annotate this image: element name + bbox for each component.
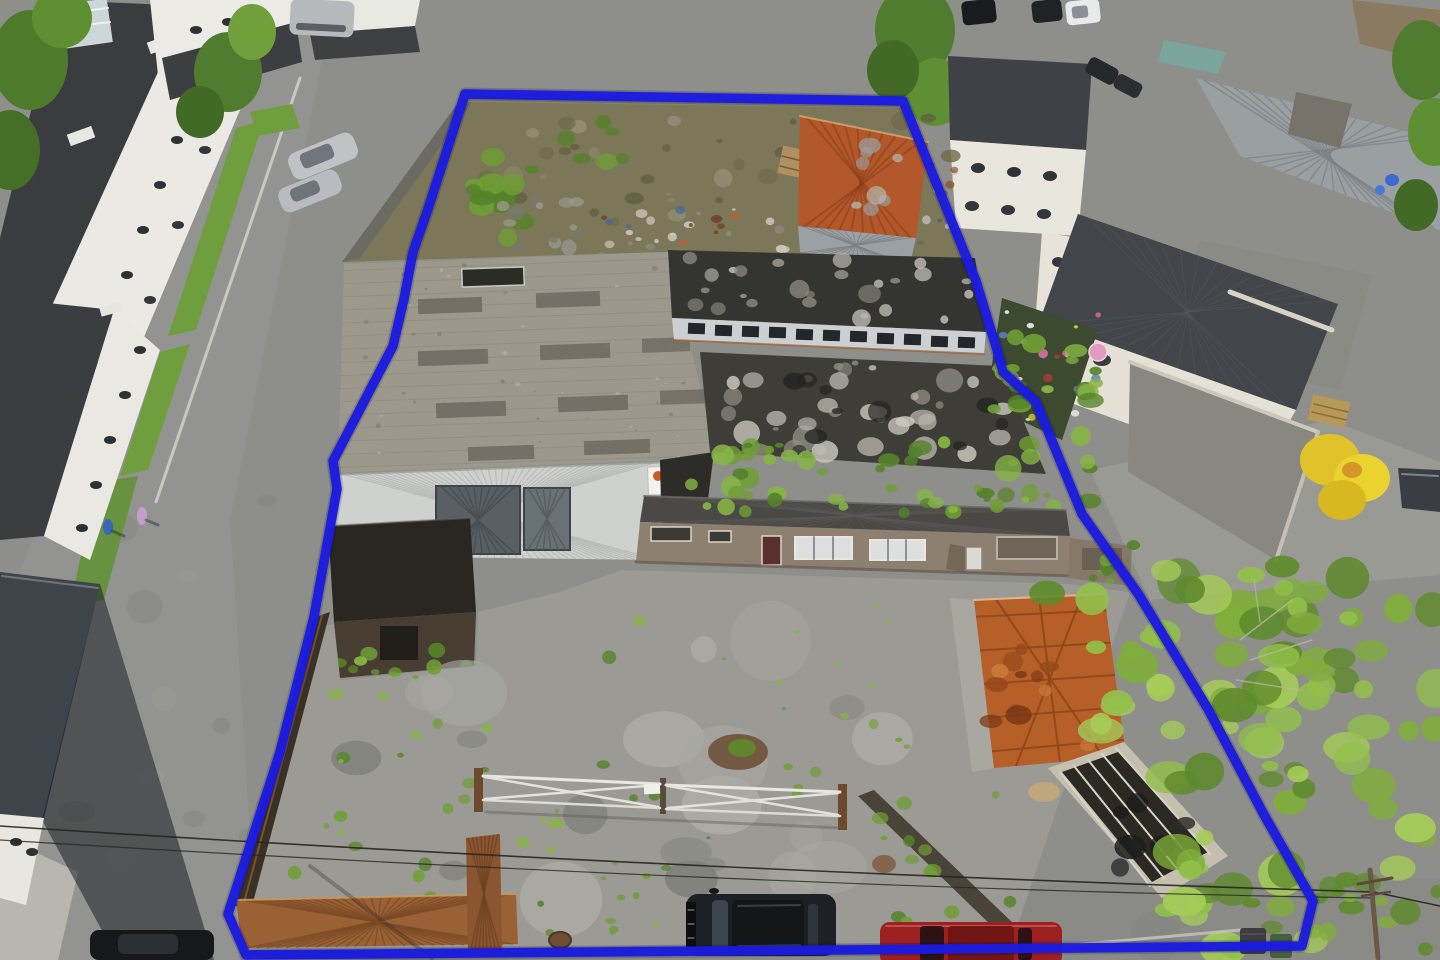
overgrowth-right: [1354, 640, 1388, 662]
yard-bushes-2: [595, 153, 618, 169]
yard-mottle: [667, 198, 675, 203]
orange-roof-rust: [1005, 705, 1031, 725]
orange-roof-rust: [985, 677, 1008, 692]
orange-roof-rust: [991, 664, 1008, 678]
house-window: [1037, 209, 1051, 219]
debris-pile: [775, 225, 785, 233]
debris-pile: [636, 209, 648, 218]
roofline-greenery: [948, 506, 958, 513]
right-fence-greens: [944, 905, 959, 918]
upper-flat-roof: [668, 250, 986, 332]
debris-pile: [628, 242, 633, 246]
lower-roof-mottle: [936, 401, 944, 409]
clerestory-window: [877, 333, 894, 345]
overgrowth-lower: [1334, 743, 1371, 775]
overgrowth-upper: [1090, 713, 1112, 735]
yard-weeds-2: [810, 767, 821, 777]
buddleia-fringe: [908, 447, 923, 458]
pedestrian-pink: [137, 507, 147, 525]
house-window: [119, 391, 131, 399]
upper-roof-mottle: [711, 302, 726, 315]
tree: [176, 86, 224, 138]
lower-roof-mottle: [798, 417, 817, 430]
debris-pile: [726, 231, 732, 237]
yard-weeds-1: [413, 870, 425, 882]
boundary-hedge: [1022, 334, 1046, 353]
yard-weeds-1: [706, 836, 710, 839]
laundry-items: [1074, 325, 1078, 328]
right-fence-greens: [918, 844, 932, 855]
house-window: [1043, 171, 1057, 181]
overgrowth-upper: [1101, 690, 1132, 714]
road-wear: [212, 717, 230, 733]
roof-speckle: [503, 291, 508, 294]
yard-weeds-1: [597, 760, 611, 769]
road-wear: [152, 687, 176, 711]
roof-vent-patch: [540, 343, 610, 360]
roof-speckle: [363, 356, 368, 360]
yard-weeds-1: [633, 892, 640, 899]
lower-roof-mottle: [989, 430, 1011, 446]
roof-vent-patch: [418, 349, 488, 366]
yard-weeds-2: [868, 684, 875, 689]
overgrowth-right: [1326, 557, 1370, 599]
roofline-greenery: [744, 491, 753, 500]
lower-roof-mottle: [852, 360, 859, 365]
roof-vent-patch: [468, 445, 534, 461]
upper-roof-mottle: [688, 298, 704, 311]
yard-weeds-1: [483, 724, 492, 732]
yard-mottle: [917, 240, 924, 245]
roof-speckle: [437, 332, 441, 336]
debris-pile: [654, 239, 659, 243]
road-wear: [126, 590, 162, 624]
yard-mottle: [540, 174, 547, 178]
lower-roof-mottle: [743, 372, 764, 388]
yard-weeds-3: [605, 918, 616, 924]
boundary-hedge: [1041, 385, 1053, 393]
debris-pile: [605, 240, 615, 248]
house-window: [965, 201, 979, 211]
cottage-small-window: [709, 531, 731, 542]
shed-base-weeds: [428, 643, 445, 658]
extension-greenery: [1089, 574, 1097, 581]
yard-weeds-1: [412, 675, 418, 679]
cottage-small-window: [651, 527, 691, 541]
lower-roof-dark: [804, 429, 827, 444]
suv-roof-rail: [738, 905, 800, 906]
house-window: [971, 163, 985, 173]
yard-mottle: [715, 197, 723, 203]
rubble-grey: [559, 197, 574, 207]
black-plastic-heap: [1111, 858, 1129, 876]
house-window: [90, 481, 102, 489]
orange-roof-rust: [1015, 671, 1027, 678]
upper-roof-mottle: [772, 259, 784, 267]
rubble-grey: [561, 240, 576, 256]
clerestory-window: [769, 327, 786, 339]
rubble-grey: [536, 202, 543, 209]
yard-mottle: [758, 169, 778, 185]
yard-weeds-1: [516, 837, 530, 848]
terrace-window: [154, 181, 166, 189]
overgrowth-right: [1287, 612, 1322, 634]
right-fence-greens: [905, 855, 919, 864]
yard-bushes: [466, 184, 481, 196]
upper-roof-mottle: [914, 267, 931, 281]
upper-roof-mottle: [879, 304, 892, 316]
roofline-greenery: [928, 497, 944, 509]
laundry-items: [1054, 354, 1060, 358]
buddleia-fringe: [711, 445, 734, 466]
lower-roof-mottle: [918, 414, 936, 430]
lower-roof-mottle: [896, 416, 915, 427]
roof-speckle: [462, 263, 467, 267]
yard-weeds-1: [328, 688, 344, 700]
roof-speckle: [655, 378, 659, 381]
rubble-grey: [570, 224, 577, 230]
upper-roof-mottle: [705, 268, 719, 281]
roof-speckle: [440, 268, 444, 272]
yard-mottle: [665, 192, 672, 196]
buddleia-fringe: [817, 468, 829, 475]
overgrowth-right: [1237, 567, 1265, 583]
yard-bushes-2: [596, 115, 611, 129]
yard-weeds-3: [288, 866, 302, 880]
grey-van: [289, 0, 355, 38]
rubble-grey: [497, 201, 509, 211]
clerestory-window: [931, 336, 948, 348]
roof-speckle: [677, 435, 679, 437]
yard-weeds-3: [610, 930, 615, 935]
overgrowth-upper: [1075, 583, 1108, 616]
right-fence-greens: [1004, 896, 1017, 908]
yard-weeds-3: [537, 901, 544, 907]
black-plastic-heap: [1127, 793, 1149, 813]
rust-roof-grey-patches: [851, 202, 862, 209]
clerestory-window: [796, 329, 813, 341]
overgrowth-lower: [1399, 721, 1419, 741]
yard-weeds-1: [548, 818, 564, 828]
yard-mottle: [570, 144, 580, 150]
yard-mottle: [641, 175, 655, 184]
debris-pile: [696, 212, 700, 216]
clerestory-window: [715, 325, 732, 337]
roof-speckle: [447, 275, 451, 278]
overgrowth-corner: [1390, 899, 1420, 925]
boarded-window: [997, 537, 1057, 559]
laundry-items: [1043, 374, 1052, 382]
tree: [867, 40, 919, 100]
black-car-glass: [118, 934, 178, 954]
overgrowth-lower: [1258, 771, 1283, 787]
debris-pile: [627, 224, 632, 229]
buddleia-fringe: [764, 446, 774, 454]
roofline-greenery: [899, 507, 910, 518]
black-shed-roof: [328, 518, 476, 622]
parked-car-dark: [961, 0, 997, 26]
boundary-hedge: [1064, 344, 1087, 357]
gate-post-left: [474, 768, 483, 812]
house-window: [104, 436, 116, 444]
laundry-items: [1005, 310, 1009, 314]
roof-speckle: [656, 402, 658, 404]
roof-speckle: [424, 288, 428, 290]
yard-weeds-1: [389, 667, 402, 677]
upper-roof-mottle: [683, 252, 697, 264]
aerial-photo-svg: [0, 0, 1440, 960]
roofline-greenery: [828, 494, 845, 505]
junk-near-wall: [922, 215, 931, 224]
yellow-bush: [1318, 480, 1366, 520]
yard-weeds-1: [722, 657, 726, 660]
roof-speckle: [534, 391, 536, 392]
rubble-grey: [503, 219, 516, 227]
yard-mottle: [920, 114, 936, 123]
roof-speckle: [502, 351, 507, 355]
house-window: [26, 848, 38, 856]
lower-roof-dark: [820, 385, 832, 395]
yard-mottle: [714, 169, 733, 188]
yard-weeds-1: [379, 692, 388, 701]
cottage-window-1: [795, 537, 852, 559]
yard-weeds-2: [782, 707, 786, 711]
buddleia-fringe: [797, 451, 816, 470]
yard-bushes: [526, 166, 539, 174]
upper-roof-mottle: [940, 315, 948, 323]
pedestrian-blue: [103, 519, 113, 535]
overgrowth-corner: [1374, 896, 1388, 905]
right-fence-greens: [896, 797, 912, 810]
buddleia-fringe: [775, 443, 784, 448]
overgrowth-right: [1339, 611, 1357, 625]
car-glass: [1071, 5, 1088, 19]
house1-wall: [950, 140, 1086, 236]
roof-speckle: [376, 423, 381, 428]
roof-speckle: [615, 285, 618, 288]
yard-weeds-2: [776, 679, 783, 684]
yard-worn-patches: [852, 712, 913, 765]
overgrowth-right: [1297, 682, 1330, 710]
roof-speckle: [364, 320, 369, 324]
lower-roof-dark: [783, 373, 806, 390]
upper-roof-mottle: [890, 278, 900, 284]
shed-base-weeds: [354, 656, 367, 665]
manhole: [549, 932, 571, 948]
lower-roof-mottle: [834, 363, 844, 370]
lower-roof-mottle: [727, 376, 740, 390]
yard-weeds-2: [992, 791, 1000, 798]
upper-roof-mottle: [914, 258, 926, 269]
buddleia-fringe: [685, 479, 698, 491]
lower-roof-dark: [868, 401, 891, 423]
roof-speckle: [668, 413, 673, 416]
rubble-grey: [549, 235, 558, 242]
debris-pile: [711, 215, 722, 223]
yard-weeds-1: [411, 731, 423, 740]
yard-bushes-2: [557, 131, 575, 146]
yard-weeds-1: [629, 794, 638, 801]
rust-roof-grey-patches: [867, 186, 887, 204]
lower-roof-dark: [832, 408, 843, 414]
yard-weeds-2: [895, 738, 902, 742]
yard-dark-patches: [439, 861, 469, 881]
upper-roof-mottle: [834, 270, 848, 279]
roof-hatch: [462, 267, 525, 287]
yard-mottle: [559, 147, 572, 155]
buddleia-fringe: [885, 484, 897, 492]
terrace-window: [144, 296, 156, 304]
boundary-hedge: [1071, 426, 1091, 446]
lower-roof-dark: [996, 418, 1008, 430]
yard-mottle: [662, 144, 671, 151]
debris-pile: [679, 240, 688, 245]
overgrowth-lower: [1179, 860, 1202, 879]
upper-roof-mottle: [746, 299, 758, 308]
yard-weeds-2: [783, 763, 793, 770]
yard-mottle: [539, 147, 554, 160]
roofline-greenery: [983, 495, 991, 502]
debris-pile: [714, 230, 718, 234]
overgrowth-lower: [1368, 797, 1397, 820]
roof-speckle: [615, 392, 620, 395]
debris-pile: [689, 223, 693, 227]
buddleia-fringe: [875, 465, 885, 473]
overgrowth-right: [1242, 671, 1282, 706]
sand-patch: [1028, 782, 1060, 802]
lower-roof-dark: [953, 441, 967, 450]
debris-pile: [779, 246, 789, 253]
roof-speckle: [634, 429, 637, 431]
upper-roof-mottle: [790, 280, 810, 298]
lower-roof-mottle: [911, 392, 919, 400]
yard-weeds-1: [458, 794, 471, 803]
house-window: [190, 26, 202, 34]
buddleia-fringe: [878, 453, 900, 466]
roof-vent-patch: [418, 297, 482, 314]
lower-roof-mottle: [967, 376, 979, 388]
buddleia-fringe: [763, 454, 776, 465]
yard-weeds-2: [886, 619, 891, 624]
yard-weeds-1: [633, 615, 646, 627]
yard-weeds-1: [338, 759, 343, 764]
buddleia-fringe: [744, 443, 753, 448]
tree: [228, 4, 276, 60]
house-window: [1001, 205, 1015, 215]
roofline-greenery: [717, 499, 735, 516]
black-plastic-heap: [1114, 835, 1146, 859]
orange-roof-rust: [979, 715, 1002, 728]
laundry-items: [1071, 410, 1079, 417]
yard-mottle: [941, 149, 961, 162]
debris-pile: [766, 217, 775, 225]
overgrowth-lower: [1185, 753, 1225, 791]
roof-speckle: [413, 401, 416, 404]
house-window: [134, 346, 146, 354]
debris-pile: [730, 213, 740, 219]
debris-pile: [635, 237, 641, 241]
yard-weeds-1: [602, 651, 616, 664]
overgrowth-lower: [1395, 813, 1436, 842]
overgrowth-upper: [1175, 576, 1205, 603]
lower-roof-mottle: [829, 372, 848, 389]
overgrowth-upper: [1147, 674, 1175, 701]
debris-pile: [606, 219, 613, 225]
rust-roof-grey-patches: [856, 157, 870, 170]
terrace-window: [137, 226, 149, 234]
roof-speckle: [561, 392, 563, 394]
roof-speckle: [521, 325, 525, 327]
yard-weeds-2: [836, 663, 840, 667]
yard-weeds-1: [337, 830, 344, 836]
yard-weeds-1: [371, 669, 380, 675]
yard-mottle: [590, 208, 599, 217]
yard-bushes-2: [605, 127, 619, 135]
yard-mottle: [625, 192, 644, 204]
blue-barrel: [1385, 174, 1399, 186]
buddleia-fringe: [738, 450, 756, 461]
buddleia-fringe: [1021, 449, 1040, 464]
extension-greenery: [1101, 566, 1112, 576]
yard-weeds-1: [661, 865, 672, 871]
roof-speckle: [681, 382, 686, 384]
boundary-hedge: [1077, 393, 1104, 408]
blue-barrel: [1375, 185, 1385, 195]
roofline-greenery: [703, 502, 712, 510]
yard-weeds-1: [443, 803, 454, 814]
gate-notice: [644, 784, 661, 795]
laundry-items: [999, 332, 1008, 338]
cottage-maroon-door: [762, 536, 781, 565]
yard-weeds-1: [617, 895, 626, 901]
overgrowth-lower: [1238, 723, 1282, 755]
overgrowth-upper: [1214, 641, 1247, 667]
house-window: [1007, 167, 1021, 177]
road-wear: [257, 495, 276, 507]
overgrowth-right: [1354, 680, 1373, 698]
overgrowth-upper: [1161, 721, 1185, 740]
upper-roof-mottle: [740, 294, 747, 298]
overgrowth-upper: [1265, 556, 1299, 578]
lower-roof-mottle: [936, 368, 963, 392]
aerial-photo: [0, 0, 1440, 960]
terrace-window: [171, 136, 183, 144]
yard-mottle: [558, 117, 576, 130]
suv-mirror: [709, 888, 719, 894]
dirt-patch-green: [728, 739, 756, 757]
yard-weeds-1: [431, 666, 435, 669]
debris-pile: [645, 244, 655, 250]
roof-speckle: [652, 266, 658, 271]
yard-weeds-1: [433, 718, 443, 728]
yard-worn-patches: [730, 601, 811, 681]
clerestory-window: [904, 334, 921, 346]
extension-greenery: [1105, 578, 1115, 585]
boundary-hedge: [1089, 367, 1101, 376]
yellow-bush-accent: [1342, 462, 1362, 478]
overgrowth-lower: [1266, 897, 1295, 917]
cottage-white-door: [966, 547, 982, 570]
boundary-hedge: [1007, 329, 1024, 345]
debris-pile: [601, 216, 607, 220]
overgrowth-right: [1302, 663, 1335, 681]
terrace-window: [121, 271, 133, 279]
road-wear: [182, 811, 205, 827]
orange-roof-rust: [1040, 661, 1059, 672]
debris-pile: [732, 208, 736, 210]
yard-mottle: [790, 118, 796, 124]
yard-weeds-1: [324, 823, 330, 829]
